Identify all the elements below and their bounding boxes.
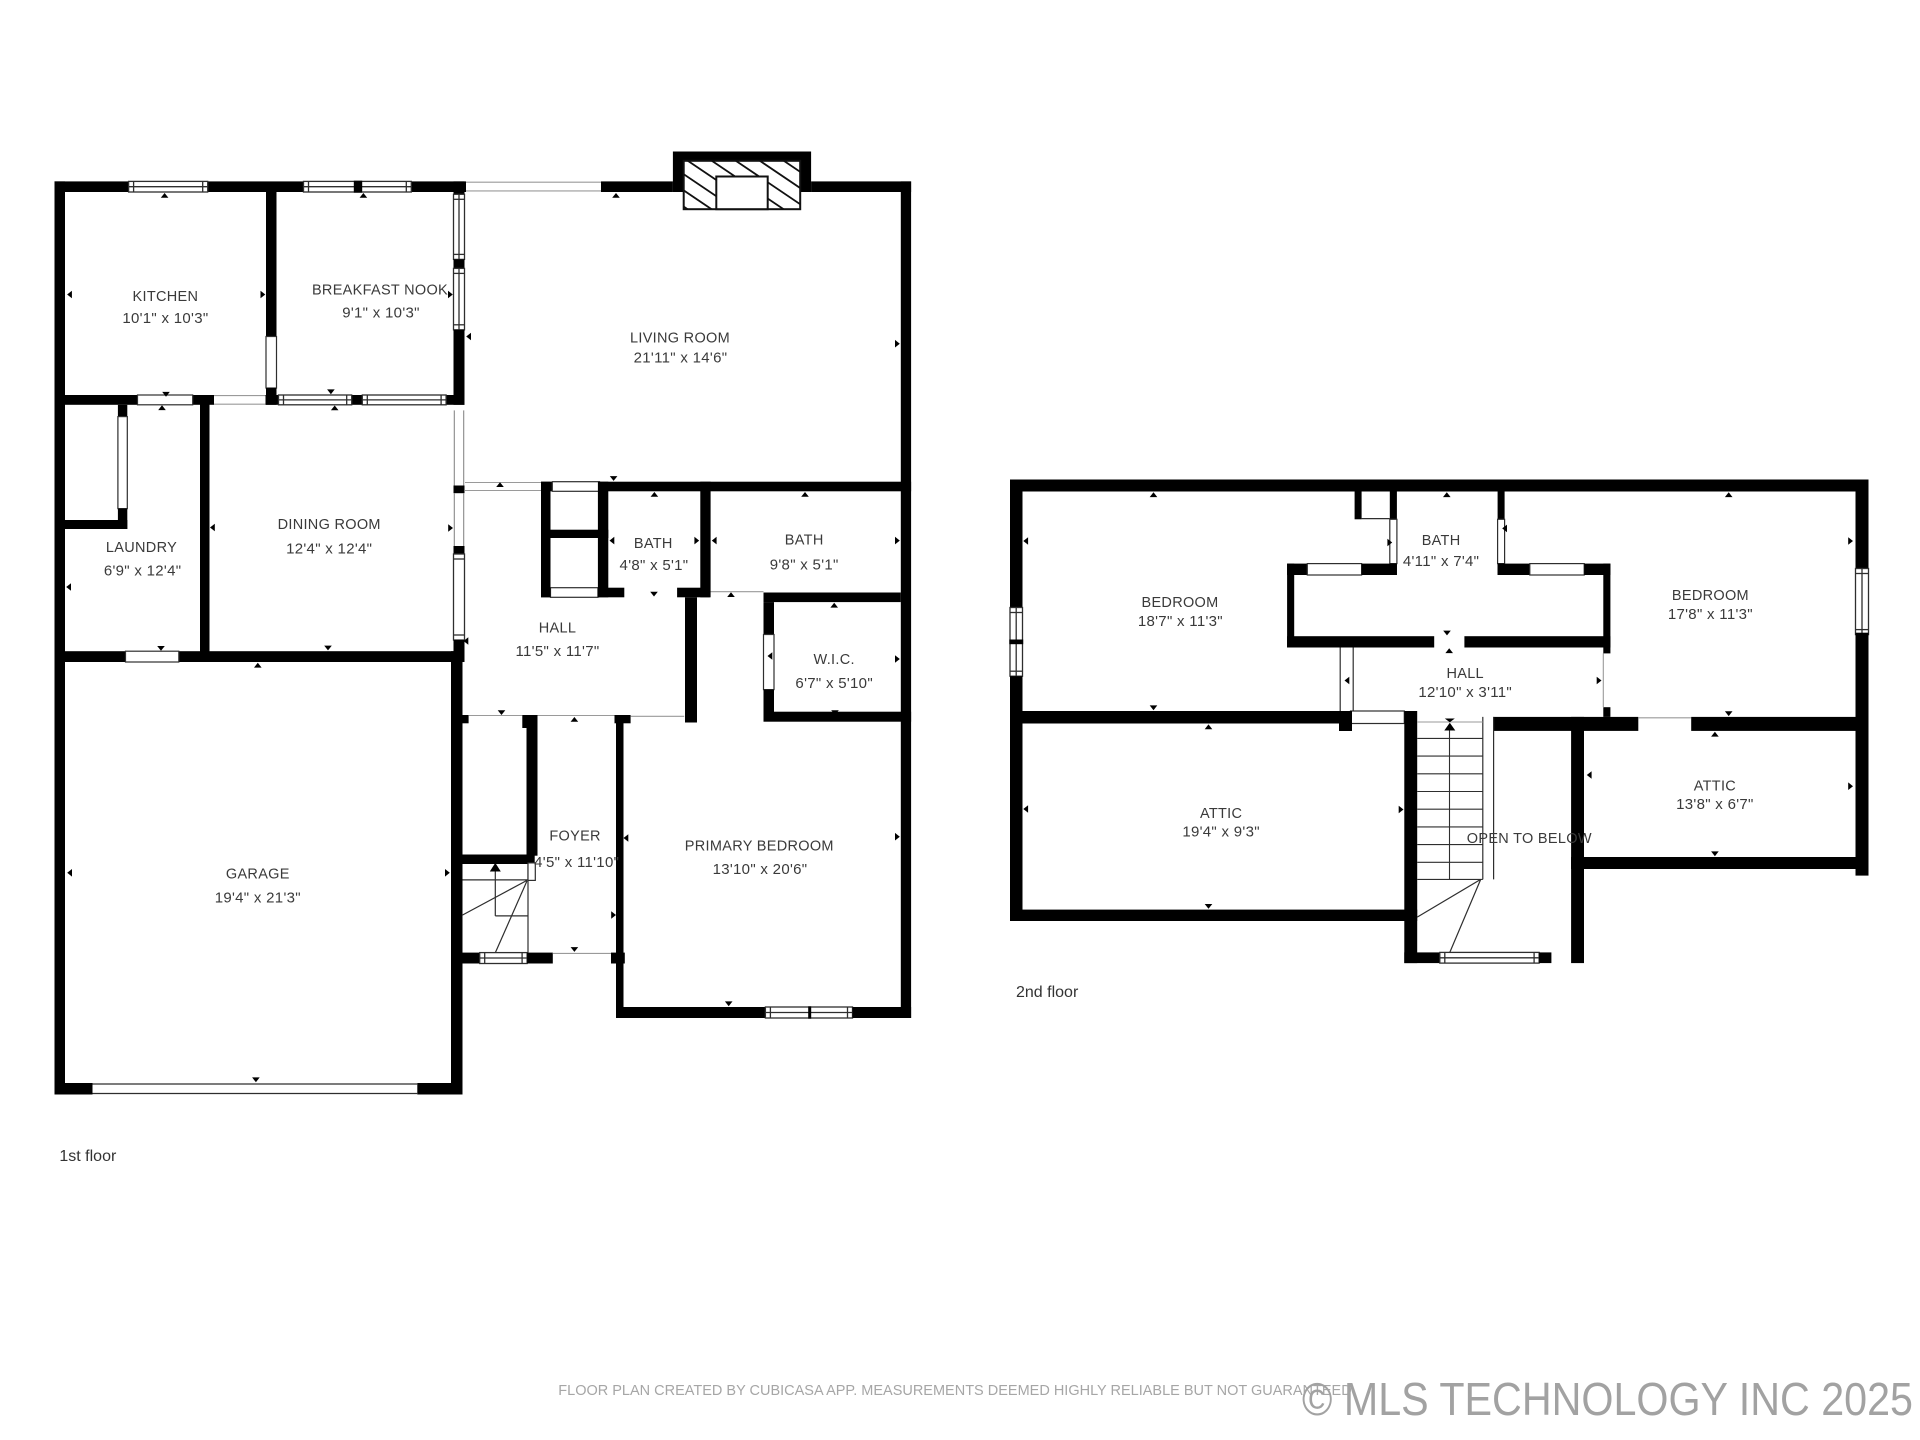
- svg-text:FLOOR PLAN CREATED BY CUBICASA: FLOOR PLAN CREATED BY CUBICASA APP. MEAS…: [558, 1383, 1355, 1399]
- svg-text:ATTIC: ATTIC: [1694, 778, 1736, 794]
- svg-text:6'7" x 5'10": 6'7" x 5'10": [795, 675, 873, 692]
- svg-text:W.I.C.: W.I.C.: [814, 652, 855, 668]
- svg-text:© MLS TECHNOLOGY INC 2025: © MLS TECHNOLOGY INC 2025: [1302, 1373, 1913, 1425]
- svg-text:LIVING ROOM: LIVING ROOM: [630, 330, 730, 346]
- svg-text:BATH: BATH: [785, 532, 824, 548]
- svg-text:KITCHEN: KITCHEN: [133, 289, 199, 305]
- svg-text:4'5" x 11'10": 4'5" x 11'10": [534, 854, 619, 871]
- svg-text:18'7" x 11'3": 18'7" x 11'3": [1138, 613, 1223, 630]
- svg-text:GARAGE: GARAGE: [226, 867, 290, 883]
- svg-text:11'5" x 11'7": 11'5" x 11'7": [516, 643, 600, 660]
- svg-text:1st floor: 1st floor: [59, 1148, 117, 1165]
- svg-text:FOYER: FOYER: [549, 829, 600, 845]
- svg-text:BEDROOM: BEDROOM: [1672, 588, 1749, 604]
- svg-text:4'11" x 7'4": 4'11" x 7'4": [1403, 553, 1479, 570]
- svg-text:4'8" x 5'1": 4'8" x 5'1": [620, 557, 689, 574]
- svg-text:9'1" x 10'3": 9'1" x 10'3": [342, 305, 420, 322]
- svg-text:13'8" x 6'7": 13'8" x 6'7": [1676, 796, 1754, 813]
- svg-text:OPEN TO BELOW: OPEN TO BELOW: [1467, 831, 1592, 847]
- svg-text:17'8" x 11'3": 17'8" x 11'3": [1668, 606, 1753, 623]
- svg-text:ATTIC: ATTIC: [1200, 806, 1242, 822]
- svg-text:BEDROOM: BEDROOM: [1141, 595, 1218, 611]
- svg-text:BREAKFAST NOOK: BREAKFAST NOOK: [312, 283, 448, 299]
- svg-text:13'10" x 20'6": 13'10" x 20'6": [713, 861, 808, 878]
- svg-text:12'10" x 3'11": 12'10" x 3'11": [1418, 684, 1512, 701]
- svg-text:19'4" x 9'3": 19'4" x 9'3": [1182, 824, 1260, 841]
- svg-text:9'8" x 5'1": 9'8" x 5'1": [770, 557, 839, 574]
- svg-text:10'1" x 10'3": 10'1" x 10'3": [122, 310, 208, 327]
- svg-text:HALL: HALL: [539, 621, 576, 637]
- svg-text:BATH: BATH: [1422, 533, 1461, 549]
- svg-text:HALL: HALL: [1446, 666, 1483, 682]
- svg-text:12'4" x 12'4": 12'4" x 12'4": [286, 540, 372, 557]
- svg-text:21'11" x 14'6": 21'11" x 14'6": [634, 350, 728, 367]
- svg-text:PRIMARY BEDROOM: PRIMARY BEDROOM: [685, 839, 834, 855]
- svg-text:19'4" x 21'3": 19'4" x 21'3": [215, 890, 301, 907]
- svg-text:2nd floor: 2nd floor: [1016, 984, 1079, 1001]
- svg-text:DINING ROOM: DINING ROOM: [278, 517, 381, 533]
- svg-text:6'9" x 12'4": 6'9" x 12'4": [104, 563, 182, 580]
- svg-text:BATH: BATH: [634, 536, 673, 552]
- svg-text:LAUNDRY: LAUNDRY: [106, 540, 177, 556]
